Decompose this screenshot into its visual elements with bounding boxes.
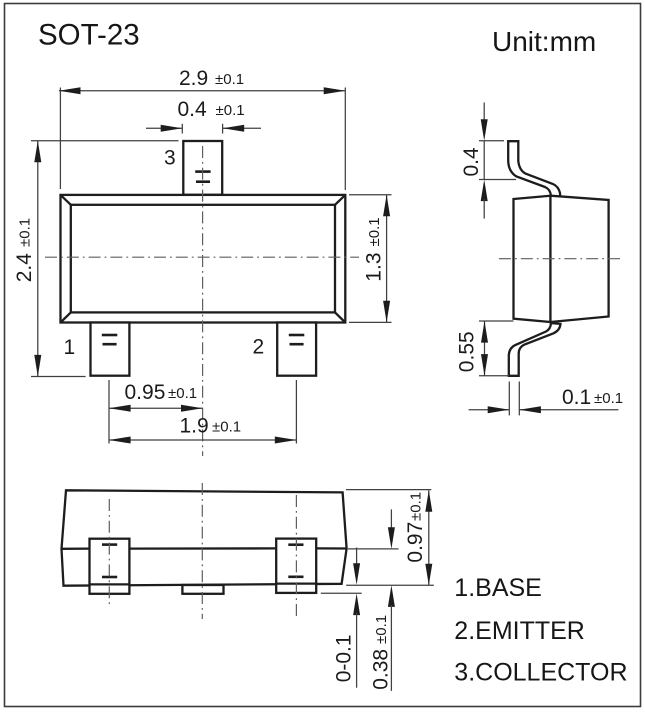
- svg-text:0.38: 0.38: [369, 649, 392, 690]
- svg-text:0.95: 0.95: [125, 381, 166, 404]
- svg-text:0-0.1: 0-0.1: [332, 634, 355, 682]
- svg-text:3.COLLECTOR: 3.COLLECTOR: [454, 659, 627, 687]
- svg-text:±0.1: ±0.1: [212, 419, 241, 436]
- svg-text:0.97: 0.97: [404, 522, 427, 563]
- svg-text:±0.1: ±0.1: [408, 492, 425, 521]
- svg-text:2: 2: [253, 336, 265, 359]
- svg-text:0.1: 0.1: [562, 386, 591, 409]
- svg-text:0.4: 0.4: [460, 147, 483, 177]
- svg-text:0.4: 0.4: [178, 98, 208, 121]
- svg-text:Unit:mm: Unit:mm: [492, 26, 596, 57]
- svg-text:±0.1: ±0.1: [366, 217, 383, 246]
- svg-text:2.EMITTER: 2.EMITTER: [454, 617, 585, 645]
- svg-text:0.55: 0.55: [455, 331, 478, 372]
- svg-text:2.9: 2.9: [179, 67, 208, 90]
- svg-text:1: 1: [64, 336, 76, 359]
- svg-text:±0.1: ±0.1: [216, 102, 245, 119]
- svg-text:±0.1: ±0.1: [17, 218, 34, 247]
- svg-text:2.4: 2.4: [13, 253, 36, 283]
- svg-text:±0.1: ±0.1: [215, 71, 244, 88]
- svg-text:±0.1: ±0.1: [373, 615, 390, 644]
- svg-text:SOT-23: SOT-23: [38, 19, 140, 52]
- svg-text:1.9: 1.9: [180, 415, 209, 438]
- svg-text:1.BASE: 1.BASE: [454, 574, 542, 602]
- svg-text:1.3: 1.3: [363, 252, 386, 281]
- svg-text:±0.1: ±0.1: [168, 385, 197, 402]
- svg-text:3: 3: [164, 147, 176, 170]
- svg-text:±0.1: ±0.1: [594, 390, 623, 407]
